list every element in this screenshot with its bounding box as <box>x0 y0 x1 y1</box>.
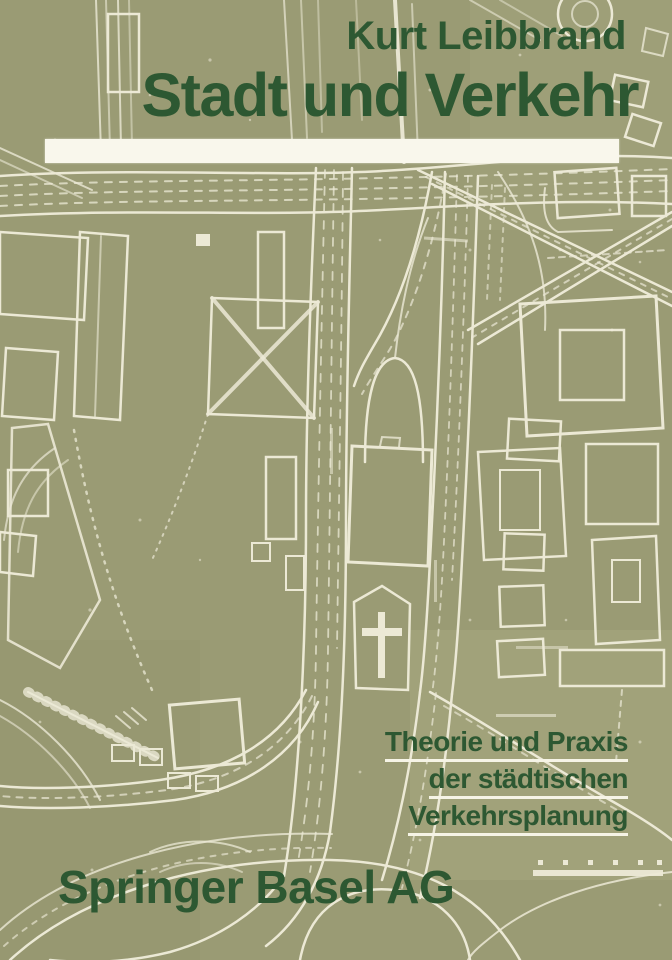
book-title: Stadt und Verkehr <box>141 60 638 130</box>
subtitle-line-1: Theorie und Praxis <box>385 725 628 762</box>
publisher-name: Springer Basel AG <box>58 860 454 914</box>
subtitle-line-2: der städtischen <box>429 762 628 799</box>
title-underline-bar <box>45 139 619 163</box>
book-cover: Kurt Leibbrand Stadt und Verkehr Theorie… <box>0 0 672 960</box>
author-name: Kurt Leibbrand <box>346 14 626 59</box>
subtitle-line-3: Verkehrsplanung <box>408 799 628 836</box>
subtitle-block: Theorie und Praxis der städtischen Verke… <box>385 725 628 836</box>
